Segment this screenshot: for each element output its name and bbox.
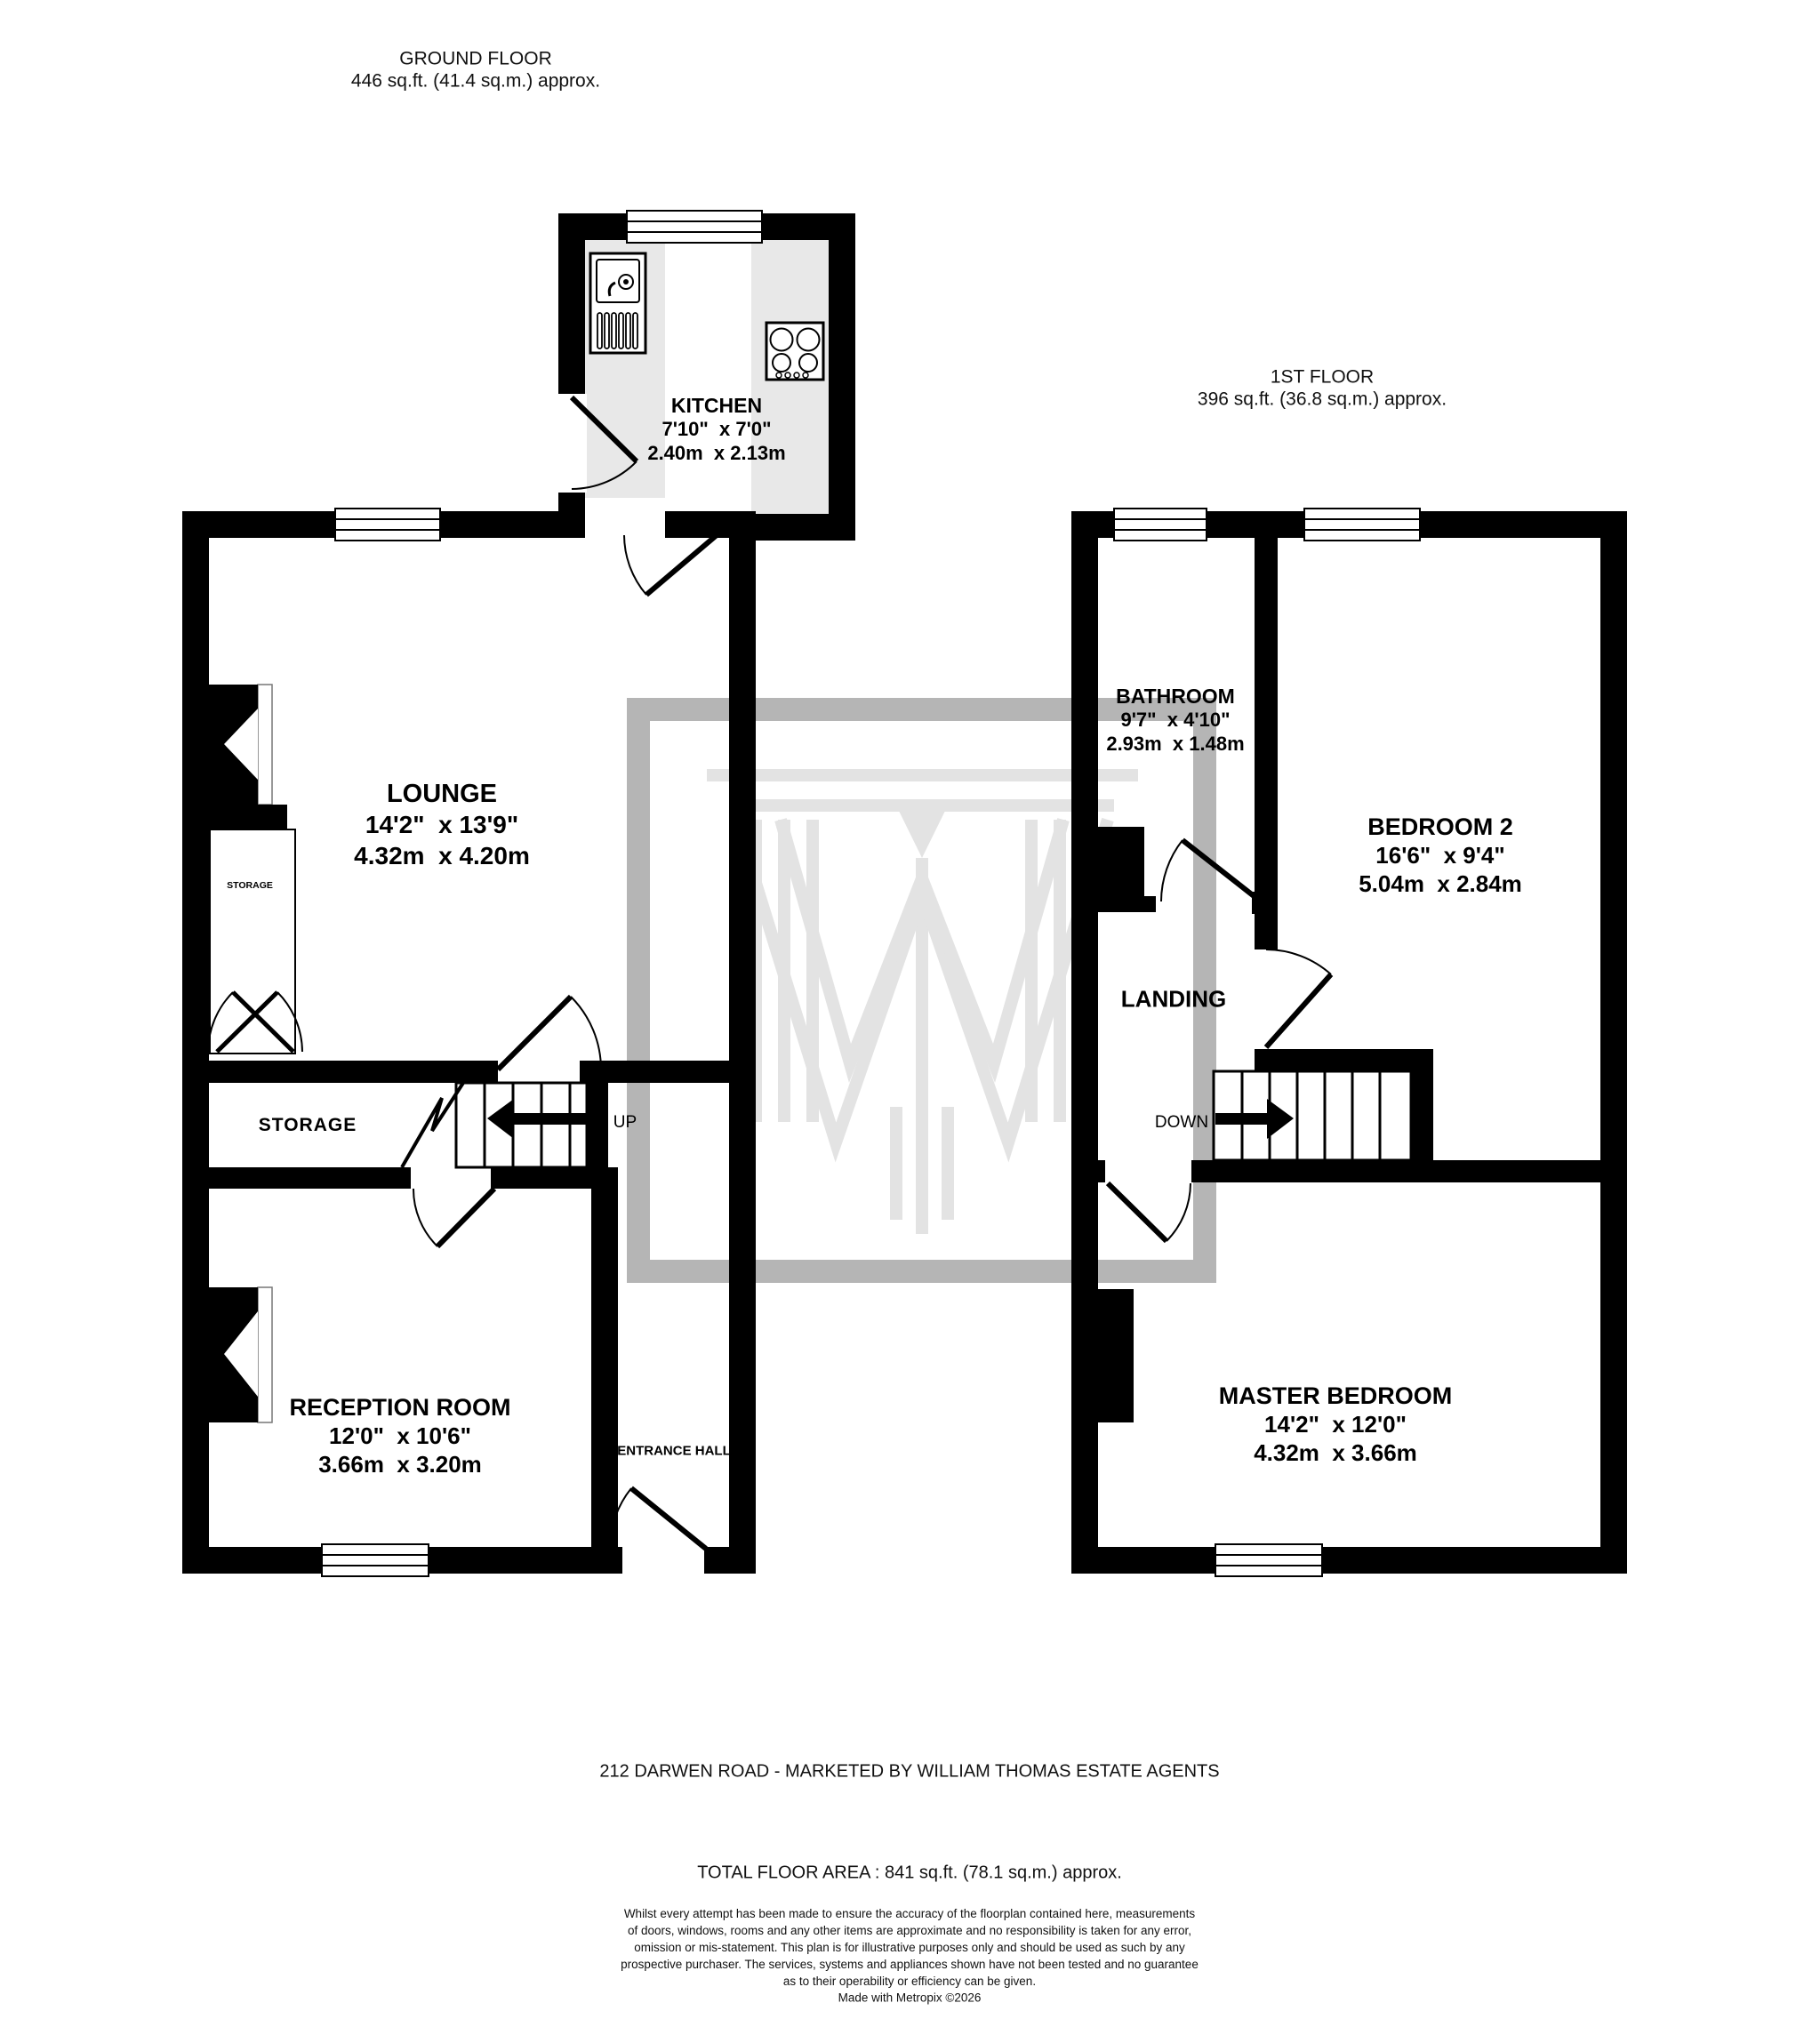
staircase-up <box>402 1083 587 1167</box>
master-window-icon <box>1215 1544 1322 1576</box>
bathroom-window-icon <box>1114 509 1207 541</box>
total-floor-area: TOTAL FLOOR AREA : 841 sq.ft. (78.1 sq.m… <box>697 1863 1122 1884</box>
kitchen-name: KITCHEN <box>671 393 762 418</box>
kitchen-window-icon <box>627 211 762 243</box>
stair-break-line <box>402 1083 463 1167</box>
landing-label: LANDING <box>1121 986 1226 1014</box>
storage-closet <box>208 805 302 1054</box>
storage-closet-label: STORAGE <box>227 880 273 891</box>
master-name: MASTER BEDROOM <box>1219 1382 1453 1411</box>
bedroom2-name: BEDROOM 2 <box>1367 813 1513 842</box>
lounge-hall-door <box>498 997 601 1070</box>
front-door <box>610 1488 706 1549</box>
up-label: UP <box>613 1113 637 1133</box>
first-floor-chimneys <box>1098 827 1156 1422</box>
room-label-master: MASTER BEDROOM 14'2" x 12'0" 4.32m x 3.6… <box>1219 1382 1453 1467</box>
bedroom2-window-icon <box>1304 509 1420 541</box>
entrance-hall-label: ENTRANCE HALL <box>617 1444 731 1459</box>
kitchen-imperial: 7'10" x 7'0" <box>661 418 771 442</box>
first-floor-area: 396 sq.ft. (36.8 sq.m.) approx. <box>1198 389 1447 411</box>
bedroom2-metric: 5.04m x 2.84m <box>1359 869 1522 898</box>
master-metric: 4.32m x 3.66m <box>1254 1438 1417 1467</box>
down-label: DOWN <box>1155 1113 1208 1133</box>
kitchen-sink-icon <box>590 253 645 353</box>
kitchen-metric: 2.40m x 2.13m <box>647 442 785 466</box>
bathroom-metric: 2.93m x 1.48m <box>1106 733 1244 757</box>
reception-door <box>413 1189 494 1246</box>
kitchen-hob-icon <box>766 323 823 380</box>
metropix-credit: Made with Metropix ©2026 <box>838 1991 982 2005</box>
reception-imperial: 12'0" x 10'6" <box>329 1422 471 1451</box>
master-bedroom-door <box>1108 1183 1191 1241</box>
storage-label: STORAGE <box>259 1115 357 1136</box>
lounge-kitchen-door <box>624 535 717 595</box>
floorplan-page: GROUND FLOOR 446 sq.ft. (41.4 sq.m.) app… <box>0 0 1820 2019</box>
room-label-bedroom2: BEDROOM 2 16'6" x 9'4" 5.04m x 2.84m <box>1359 813 1522 898</box>
bathroom-imperial: 9'7" x 4'10" <box>1120 709 1230 733</box>
ground-floor-title: GROUND FLOOR <box>399 48 552 70</box>
bedroom2-imperial: 16'6" x 9'4" <box>1375 842 1504 870</box>
room-label-lounge: LOUNGE 14'2" x 13'9" 4.32m x 4.20m <box>354 779 530 871</box>
lounge-metric: 4.32m x 4.20m <box>354 841 530 871</box>
room-label-kitchen: KITCHEN 7'10" x 7'0" 2.40m x 2.13m <box>647 393 785 466</box>
reception-window-icon <box>322 1544 429 1576</box>
ground-floor-area: 446 sq.ft. (41.4 sq.m.) approx. <box>351 70 600 92</box>
floorplan-drawing <box>0 0 1820 2019</box>
disclaimer-text: Whilst every attempt has been made to en… <box>447 1905 1372 1990</box>
address-line: 212 DARWEN ROAD - MARKETED BY WILLIAM TH… <box>599 1762 1219 1783</box>
ground-floor-doors <box>413 397 717 1549</box>
lounge-imperial: 14'2" x 13'9" <box>365 811 518 841</box>
first-floor-title: 1ST FLOOR <box>1271 366 1374 389</box>
room-label-bathroom: BATHROOM 9'7" x 4'10" 2.93m x 1.48m <box>1106 684 1244 757</box>
master-imperial: 14'2" x 12'0" <box>1264 1411 1407 1439</box>
reception-metric: 3.66m x 3.20m <box>318 1450 482 1478</box>
lounge-window-icon <box>335 509 440 541</box>
room-label-reception: RECEPTION ROOM 12'0" x 10'6" 3.66m x 3.2… <box>289 1393 510 1478</box>
lounge-name: LOUNGE <box>387 779 497 810</box>
bedroom2-door <box>1266 949 1331 1047</box>
reception-name: RECEPTION ROOM <box>289 1393 510 1422</box>
bathroom-name: BATHROOM <box>1116 684 1235 709</box>
staircase-down <box>1214 1071 1411 1160</box>
watermark-logo <box>638 709 1205 1271</box>
